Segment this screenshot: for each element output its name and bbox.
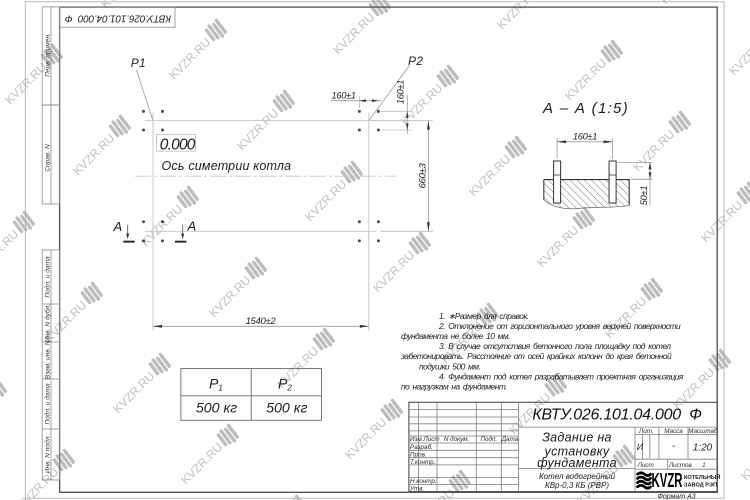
svg-text:Взам. инв. N: Взам. инв. N	[45, 341, 52, 380]
svg-text:Формат А3: Формат А3	[657, 493, 695, 500]
svg-text:А – А (1:5): А – А (1:5)	[542, 100, 629, 117]
svg-text:1540±2: 1540±2	[246, 316, 277, 327]
svg-text:фундамента не более 10 мм.: фундамента не более 10 мм.	[401, 331, 510, 341]
svg-text:ЗАВОД РЭП: ЗАВОД РЭП	[684, 483, 717, 489]
svg-text:Изм.Лист: Изм.Лист	[410, 436, 440, 443]
svg-text:Перв. примен.: Перв. примен.	[45, 33, 52, 77]
svg-text:160±1: 160±1	[396, 80, 406, 104]
svg-text:Подп. и дата: Подп. и дата	[44, 256, 52, 298]
svg-text:Подп. и дата: Подп. и дата	[44, 383, 52, 425]
svg-text:КВр-0,3 КБ (РВР): КВр-0,3 КБ (РВР)	[545, 481, 609, 490]
svg-text:Масштаб: Масштаб	[688, 427, 718, 435]
svg-text:2. Отклонение от горизонтально: 2. Отклонение от горизонтального уровня …	[438, 321, 681, 331]
svg-text:4. Фундамент под котел разраба: 4. Фундамент под котел разрабатывает про…	[439, 371, 684, 381]
svg-text:Листов: Листов	[668, 462, 693, 469]
svg-text:3. В случае отсутствия бетонно: 3. В случае отсутствия бетонного пола пл…	[439, 341, 671, 351]
svg-text:КВТУ.026.101.04.000 Ф: КВТУ.026.101.04.000 Ф	[532, 407, 702, 424]
svg-text:Подп.: Подп.	[480, 435, 497, 443]
svg-text:KVZR: KVZR	[652, 470, 683, 492]
svg-text:P1: P1	[209, 376, 223, 393]
svg-text:P1: P1	[131, 56, 146, 70]
svg-text:Инв. N дубл.: Инв. N дубл.	[44, 304, 52, 342]
svg-text:Пров.: Пров.	[410, 451, 427, 458]
svg-text:забетонировать. Расстояние от: забетонировать. Расстояние от осей крайн…	[400, 351, 672, 361]
svg-text:0.000: 0.000	[160, 137, 196, 154]
svg-text:Дата: Дата	[501, 436, 519, 443]
svg-text:500 кг: 500 кг	[196, 401, 237, 417]
svg-text:Справ. N: Справ. N	[45, 144, 52, 172]
svg-text:фундамента: фундамента	[537, 456, 617, 470]
svg-text:660±3: 660±3	[417, 162, 428, 188]
svg-text:1:20: 1:20	[693, 443, 713, 454]
svg-text:-: -	[672, 441, 676, 452]
svg-text:Утв.: Утв.	[409, 486, 424, 493]
svg-text:Лист: Лист	[637, 462, 654, 469]
svg-text:1: 1	[702, 462, 706, 469]
svg-text:160±1: 160±1	[573, 131, 597, 141]
svg-text:Масса: Масса	[664, 428, 683, 435]
svg-text:500 кг: 500 кг	[266, 401, 307, 417]
svg-text:подушки 500 мм.: подушки 500 мм.	[419, 361, 480, 371]
svg-text:1. ∗Размер для справок.: 1. ∗Размер для справок.	[439, 311, 529, 321]
svg-text:Задание на: Задание на	[542, 430, 612, 444]
svg-text:A: A	[187, 219, 197, 234]
svg-text:Лит.: Лит.	[638, 428, 654, 435]
svg-text:Н.контр.: Н.контр.	[410, 478, 437, 485]
svg-text:по нагрузкам на фундамент.: по нагрузкам на фундамент.	[401, 382, 507, 392]
svg-text:КОТЕЛЬНЫЙ: КОТЕЛЬНЫЙ	[684, 473, 720, 481]
svg-text:Ось симетрии котла: Ось симетрии котла	[162, 159, 292, 173]
svg-text:N докум.: N докум.	[444, 435, 469, 443]
svg-text:Котел водогрейный: Котел водогрейный	[539, 472, 616, 481]
svg-text:Инв. N подл.: Инв. N подл.	[44, 435, 52, 474]
svg-text:50±1: 50±1	[639, 186, 649, 206]
svg-text:И: И	[637, 442, 644, 452]
svg-text:P2: P2	[408, 54, 423, 68]
svg-text:160±1: 160±1	[332, 91, 356, 101]
svg-text:A: A	[113, 219, 123, 234]
svg-text:КВТУ.026.101.04.000 Ф: КВТУ.026.101.04.000 Ф	[65, 12, 171, 23]
svg-text:Разраб.: Разраб.	[410, 443, 433, 451]
svg-text:Т.контр.: Т.контр.	[410, 459, 435, 466]
